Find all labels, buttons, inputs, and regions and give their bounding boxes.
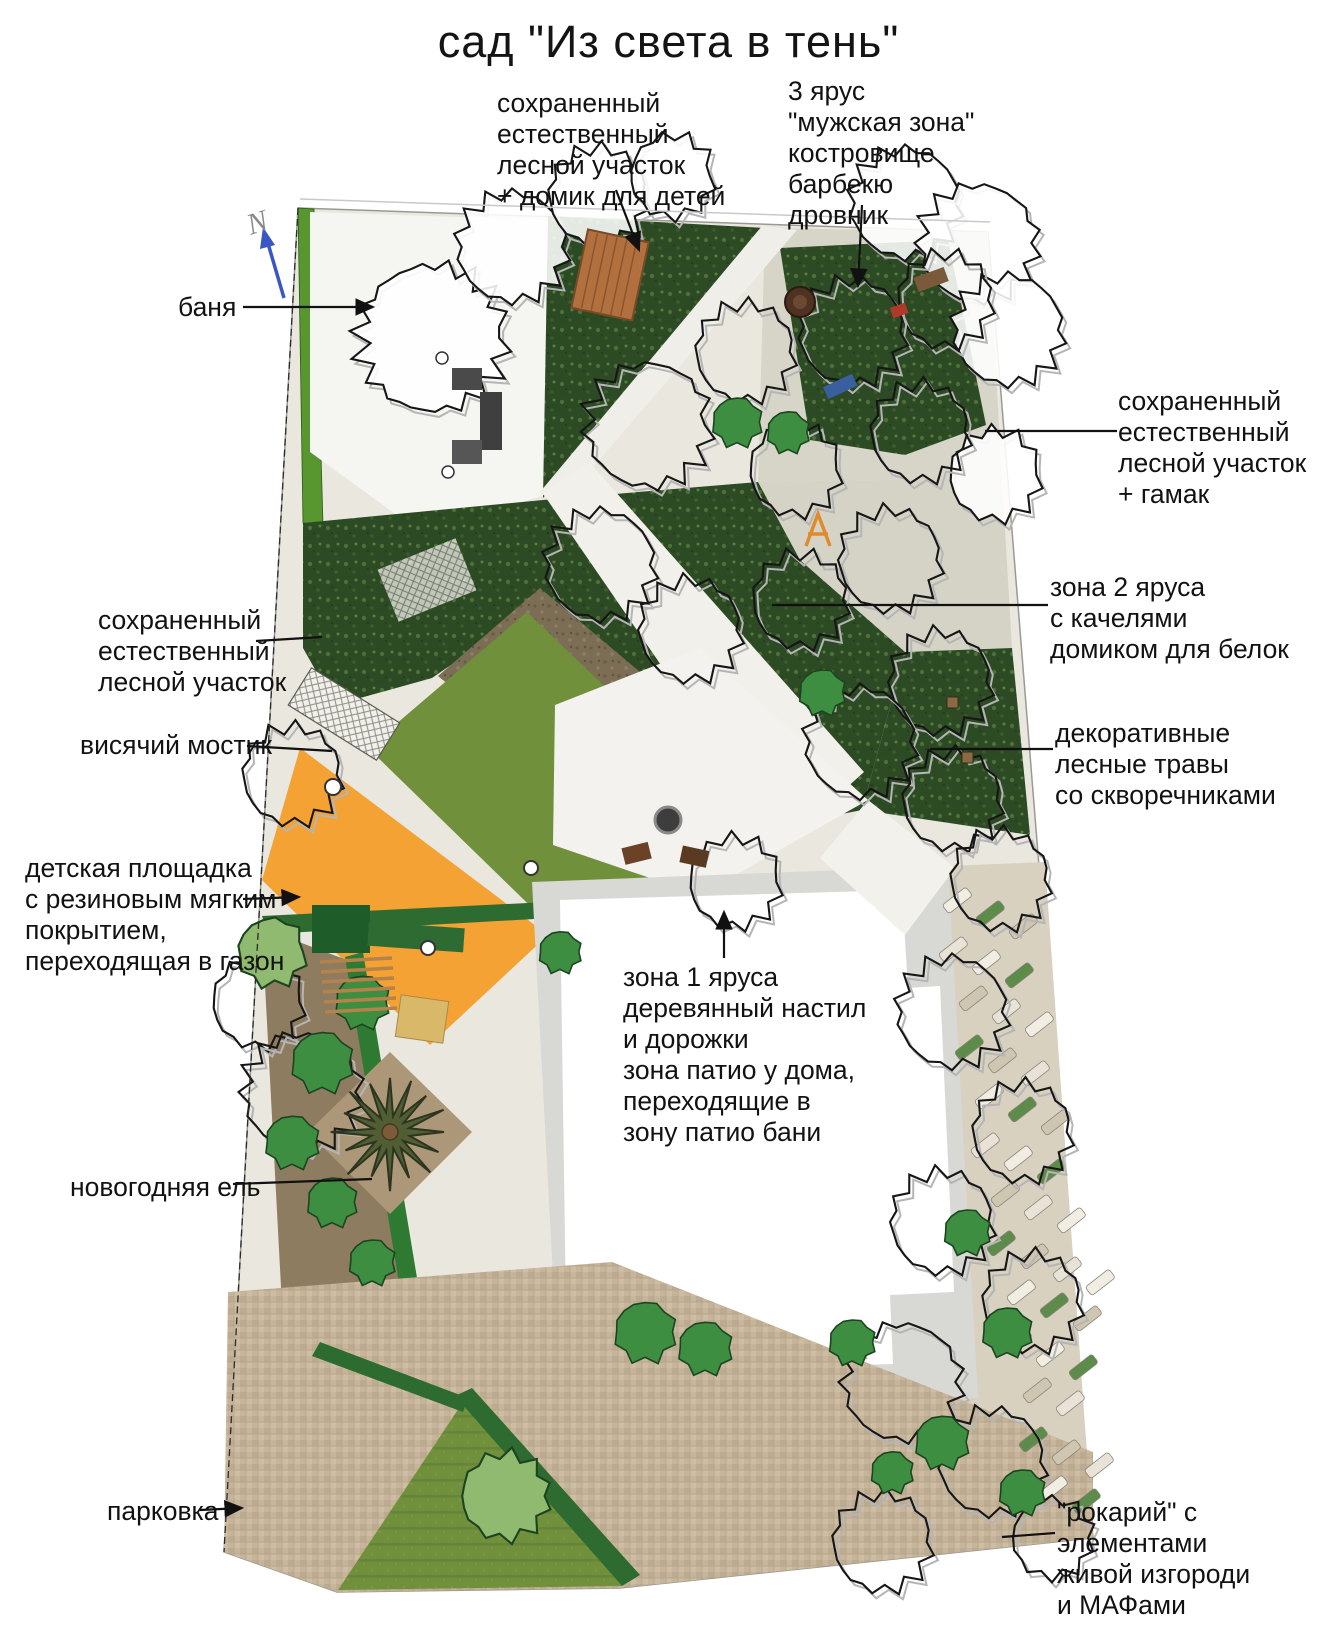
banya-lamp-marker — [436, 352, 448, 364]
label-parking: парковка — [107, 1496, 218, 1527]
post-marker — [524, 861, 538, 875]
north-arrow: N — [242, 203, 284, 298]
banya-building-part — [452, 368, 482, 390]
banya-lamp-marker — [442, 466, 454, 478]
sandbox — [395, 995, 448, 1043]
play-tower — [312, 905, 370, 953]
label-rockery: "рокарий" с элементами живой изгороди и … — [1057, 1497, 1337, 1621]
fire-pit-inner — [793, 295, 807, 309]
post-marker — [325, 779, 341, 795]
plan-title: сад "Из света в тень" — [0, 16, 1337, 68]
label-new-year-spruce: новогодняя ель — [70, 1172, 260, 1203]
label-tier1-deck: зона 1 яруса деревянный настил и дорожки… — [623, 962, 866, 1148]
north-letter: N — [242, 203, 274, 241]
label-banya: баня — [178, 292, 236, 323]
label-tier3-male-zone: 3 ярус "мужская зона" костровище барбекю… — [788, 76, 974, 231]
label-tier2-swings: зона 2 яруса с качелями домиком для бело… — [1050, 572, 1289, 665]
banya-building-part — [480, 392, 502, 450]
label-preserved-forest-hammock: сохраненный естественный лесной участок … — [1118, 386, 1306, 510]
banya-building-part — [452, 440, 482, 464]
garden-master-plan: N сад "Из света в тень" сохраненный есте… — [0, 0, 1337, 1642]
label-preserved-forest-left: сохраненный естественный лесной участок — [98, 605, 286, 698]
label-hanging-bridge: висячий мостик — [80, 730, 272, 761]
label-preserved-forest-kids: сохраненный естественный лесной участок … — [497, 88, 725, 212]
patio-fire-bowl — [655, 807, 681, 833]
post-marker — [421, 941, 435, 955]
rockery-stone — [1085, 1269, 1115, 1296]
plan-drawing: N — [0, 0, 1337, 1642]
label-decorative-grasses: декоративные лесные травы со скворечника… — [1055, 718, 1276, 811]
birdhouse — [947, 697, 958, 708]
label-playground: детская площадка с резиновым мягким покр… — [25, 853, 284, 977]
birdhouse — [962, 752, 973, 763]
